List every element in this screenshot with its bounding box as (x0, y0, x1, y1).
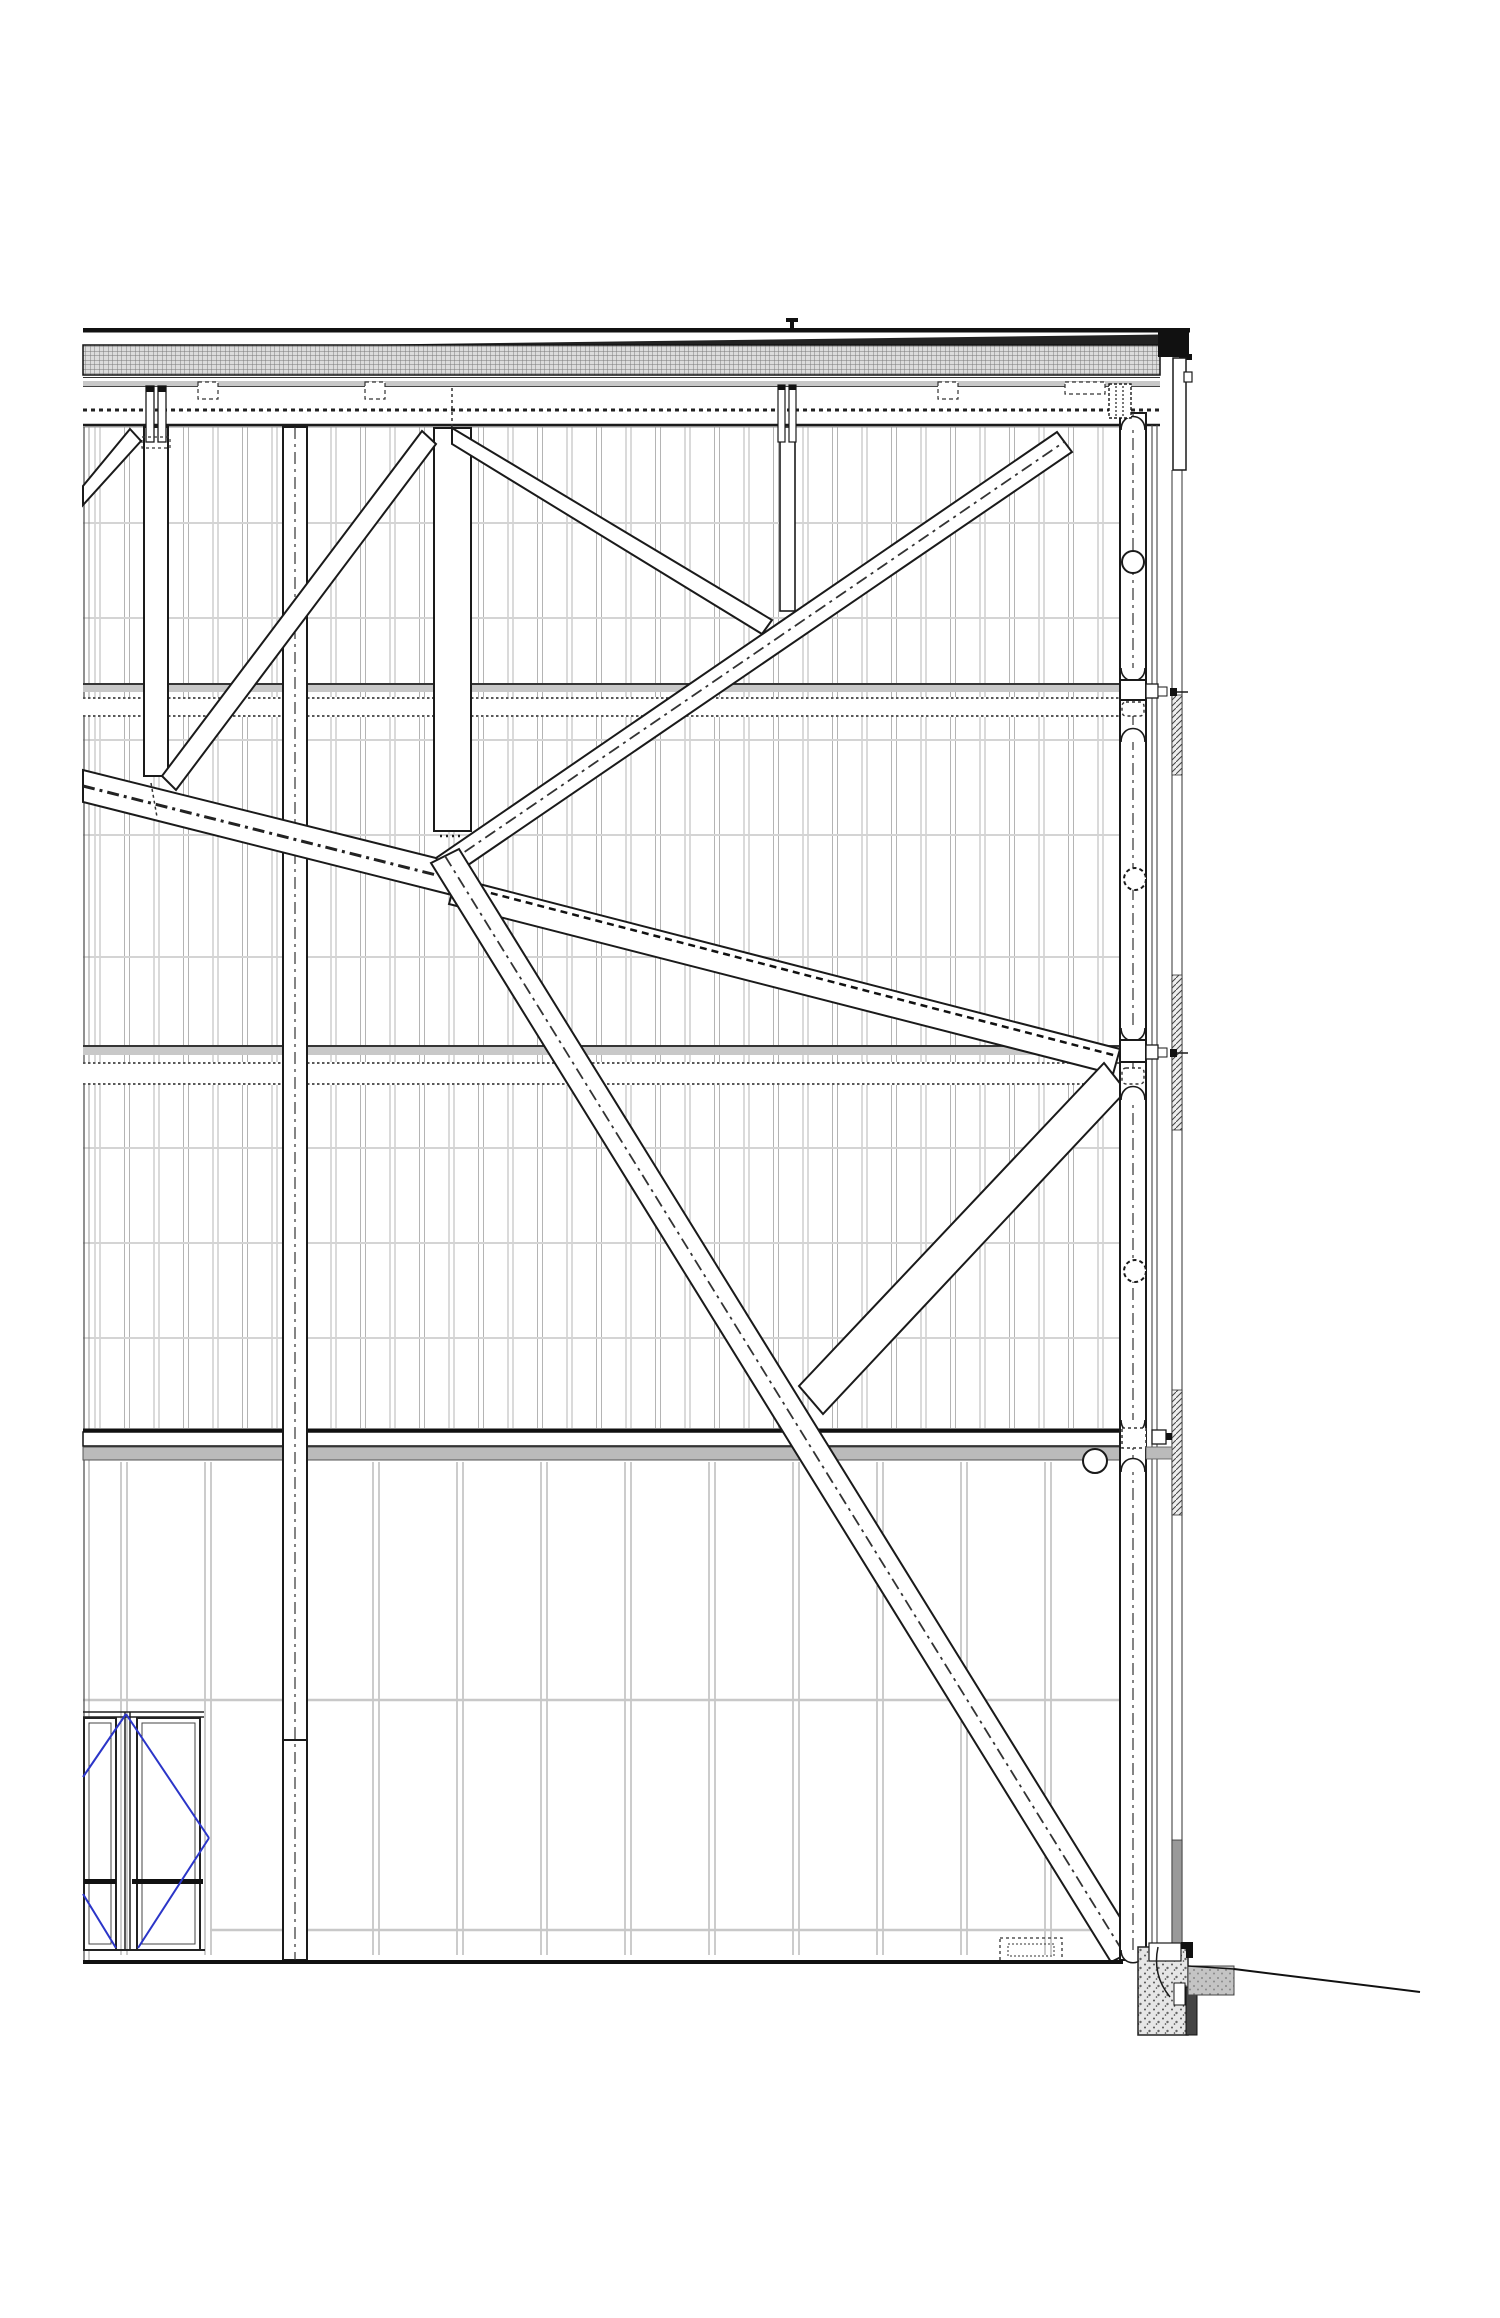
kicker-column-down-left (799, 1063, 1126, 1414)
floor-beam-body-1 (83, 1432, 283, 1446)
foundation-inner-slot (1174, 1983, 1185, 2005)
roof-top-anchor-stem (790, 322, 794, 330)
exterior-grade-line (1234, 1969, 1420, 1992)
hanger-1-splice-plate-b (158, 386, 166, 442)
hanger-4-body (780, 427, 795, 611)
brace-upper-falling (452, 428, 772, 634)
architectural-section-drawing (0, 0, 1500, 2318)
section-detail-svg (0, 0, 1500, 2318)
floor-beam-gray-1 (83, 1447, 283, 1460)
beam-b-body-1 (83, 1062, 283, 1085)
curtain-wall-grid-layer (95, 427, 1103, 1955)
interior-floor-line (83, 1960, 1123, 1964)
facade-base-gray-strip (1172, 1840, 1182, 1943)
hanger-3-body (434, 428, 471, 831)
connection-bolt-1a (1146, 684, 1158, 698)
roof-top-anchor-tee (786, 318, 798, 322)
hanger-4-splice-plate-b (789, 385, 796, 442)
purlin-dashed-box-1 (198, 382, 218, 399)
foundation-top-step (1149, 1943, 1181, 1961)
pipe-circle-lower-dashed (1124, 1260, 1146, 1282)
connection-plate-dashed-1 (1122, 702, 1144, 716)
beam-a-body-3 (471, 697, 1120, 717)
roof-deck-hatch-band (83, 345, 1160, 375)
connection-pin-3 (1166, 1433, 1172, 1440)
slab-recess-dashed-inner (1008, 1944, 1054, 1956)
connection-bolt-2a (1146, 1045, 1158, 1059)
purlin-dashed-box-4 (1065, 382, 1105, 394)
roof-cap-line (83, 328, 1190, 333)
purlin-dashed-box-2 (365, 382, 385, 399)
hanger-4-splice-cap-a (778, 385, 785, 390)
hanger-4-splice-cap-b (789, 385, 796, 390)
pipe-circle-upper (1122, 551, 1144, 573)
pipe-circle-base (1083, 1449, 1107, 1473)
facade-insulation-hatch-1 (1172, 695, 1182, 775)
connection-bracket-3 (1152, 1430, 1166, 1444)
pipe-circle-mid-dashed (1124, 868, 1146, 890)
hanger-1-splice-cap-a (146, 386, 154, 392)
beam-b-body-2 (307, 1062, 1120, 1085)
roof-slope-wedge (340, 335, 1160, 346)
facade-top-small-block (1184, 372, 1192, 382)
brace-top-left (83, 429, 141, 505)
edge-column-top-bolt-group (1109, 384, 1131, 418)
hanger-1-splice-cap-b (158, 386, 166, 392)
beam-a-body-1 (83, 697, 283, 717)
door-push-bar-left (84, 1879, 116, 1884)
roof-gray-band (83, 381, 1160, 386)
roof-corner-gutter-block (1158, 332, 1189, 357)
door-push-bar-right (132, 1879, 203, 1884)
connection-block-3-dashed (1122, 1428, 1146, 1448)
beam-a-body-2 (307, 697, 434, 717)
connection-block-2 (1120, 1040, 1146, 1062)
hanger-1-body (144, 427, 168, 776)
floor-beam-gray-2 (307, 1447, 1120, 1460)
door-leaf-right (137, 1718, 200, 1950)
connection-plate-dashed-2 (1122, 1068, 1144, 1084)
connection-bolt-2b (1158, 1048, 1167, 1057)
hanger-4-splice-plate-a (778, 385, 785, 442)
structural-members-layer (83, 318, 1420, 2035)
gravel-bed (1188, 1966, 1234, 1995)
facade-insulation-hatch-3 (1172, 1390, 1182, 1515)
connection-pin-2 (1170, 1049, 1177, 1057)
slab-recess-dashed-outer (1000, 1938, 1062, 1962)
connection-block-1 (1120, 680, 1146, 700)
floor-beam-gray-tab (1146, 1447, 1172, 1459)
connection-pin-1 (1170, 688, 1177, 696)
floor-beam-body-2 (307, 1432, 1120, 1446)
purlin-dashed-box-3 (938, 382, 958, 399)
hanger-1-splice-plate-a (146, 386, 154, 442)
connection-bolt-1b (1158, 687, 1167, 696)
